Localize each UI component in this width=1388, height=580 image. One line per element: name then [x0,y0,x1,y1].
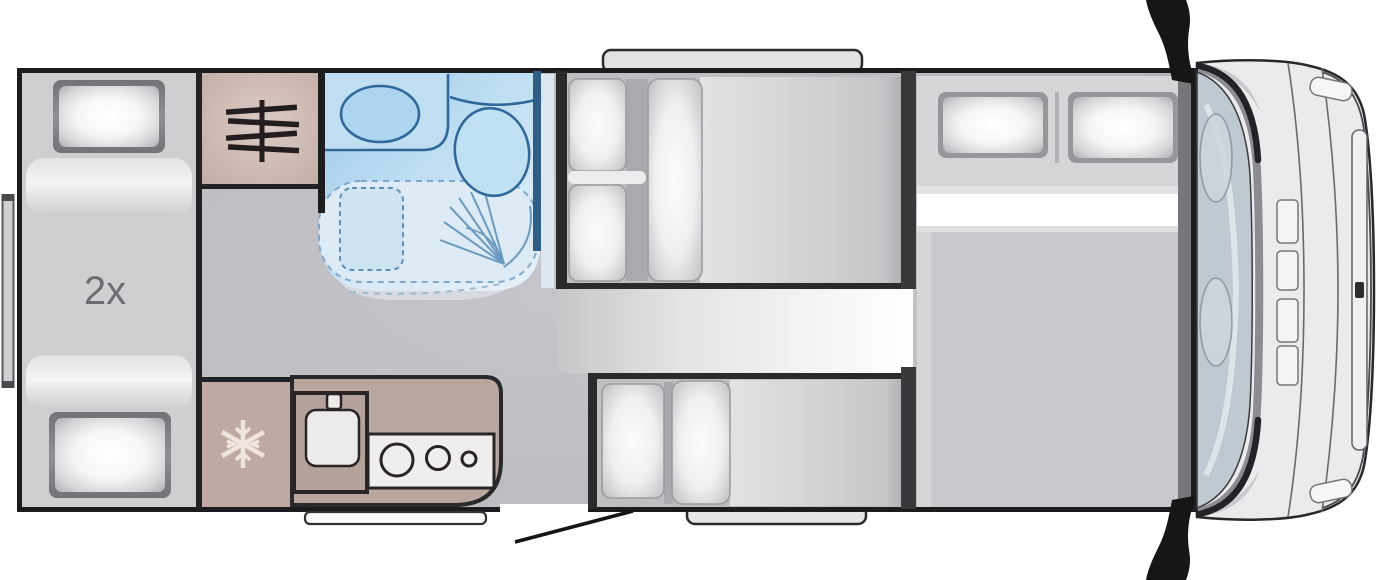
svg-text:2x: 2x [84,269,126,313]
